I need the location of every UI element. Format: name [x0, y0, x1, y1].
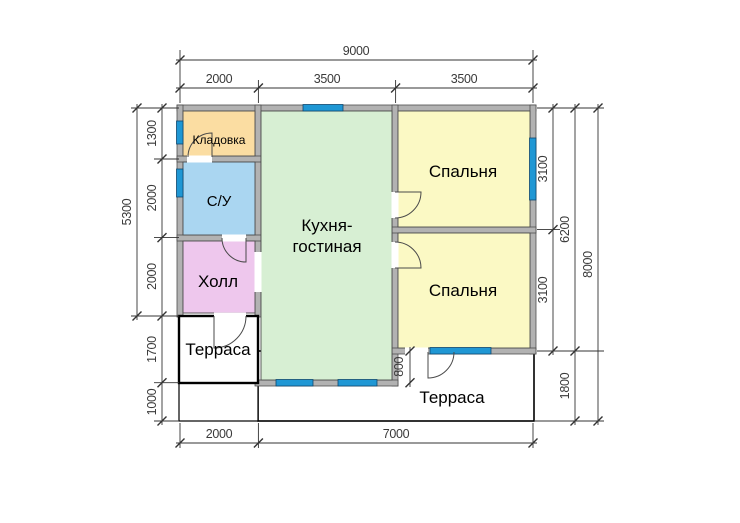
label-storage: Кладовка: [193, 133, 246, 147]
dim-right-mid1: 6200: [558, 216, 572, 243]
door-gap-storage: [187, 156, 212, 163]
dim-bottom-seg1: 2000: [206, 427, 233, 441]
floor-plan-page: 9000 2000 3500 3500 5300 1300 2000 2000 …: [0, 0, 740, 523]
dim-right-overall: 8000: [581, 251, 595, 278]
dim-top-overall: 9000: [343, 44, 370, 58]
label-terrace-bottom: Терраса: [419, 388, 485, 407]
terrace-step-area: [179, 383, 258, 421]
door-gap-hall-terrace: [214, 313, 246, 319]
dim-right-inner2: 3100: [536, 276, 550, 303]
label-bedroom1: Спальня: [429, 162, 497, 181]
window-kitchen-top: [303, 105, 343, 112]
dim-bottom-seg2: 7000: [383, 427, 410, 441]
wall-top: [177, 105, 536, 111]
dim-top-seg1: 2000: [206, 72, 233, 86]
label-bathroom: С/У: [207, 193, 232, 210]
window-bathroom-left: [177, 169, 184, 197]
wall-bedroom-divider: [392, 227, 536, 233]
dim-right-inner1: 3100: [536, 155, 550, 182]
window-storage-left: [177, 121, 184, 144]
dim-top-seg2: 3500: [314, 72, 341, 86]
door-gap-bedroom1: [392, 192, 399, 218]
label-hall: Холл: [198, 272, 238, 291]
label-kitchen-line2: гостиная: [292, 237, 361, 256]
door-gap-bedroom2: [392, 242, 399, 268]
window-bedroom2-bottom: [430, 348, 491, 355]
dim-top-seg3: 3500: [451, 72, 478, 86]
window-kitchen-bottom-1: [276, 380, 313, 387]
wall-bathroom-hall: [177, 235, 261, 241]
label-kitchen-line1: Кухня-: [301, 216, 352, 235]
dim-right-mid2: 1800: [558, 372, 572, 399]
label-terrace-left: Терраса: [185, 340, 251, 359]
dim-terrace-depth: 800: [392, 356, 406, 376]
label-bedroom2: Спальня: [429, 281, 497, 300]
dim-left-seg3: 2000: [145, 263, 159, 290]
dim-left-overall: 5300: [120, 198, 134, 225]
door-gap-hall-kitchen: [255, 252, 262, 292]
dim-left-seg1: 1300: [145, 120, 159, 147]
door-gap-bathroom: [222, 235, 246, 242]
floor-plan-drawing: 9000 2000 3500 3500 5300 1300 2000 2000 …: [0, 0, 740, 523]
dim-left-seg4: 1700: [145, 336, 159, 363]
dim-left-seg2: 2000: [145, 184, 159, 211]
dim-left-seg5: 1000: [145, 388, 159, 415]
window-kitchen-bottom-2: [338, 380, 377, 387]
